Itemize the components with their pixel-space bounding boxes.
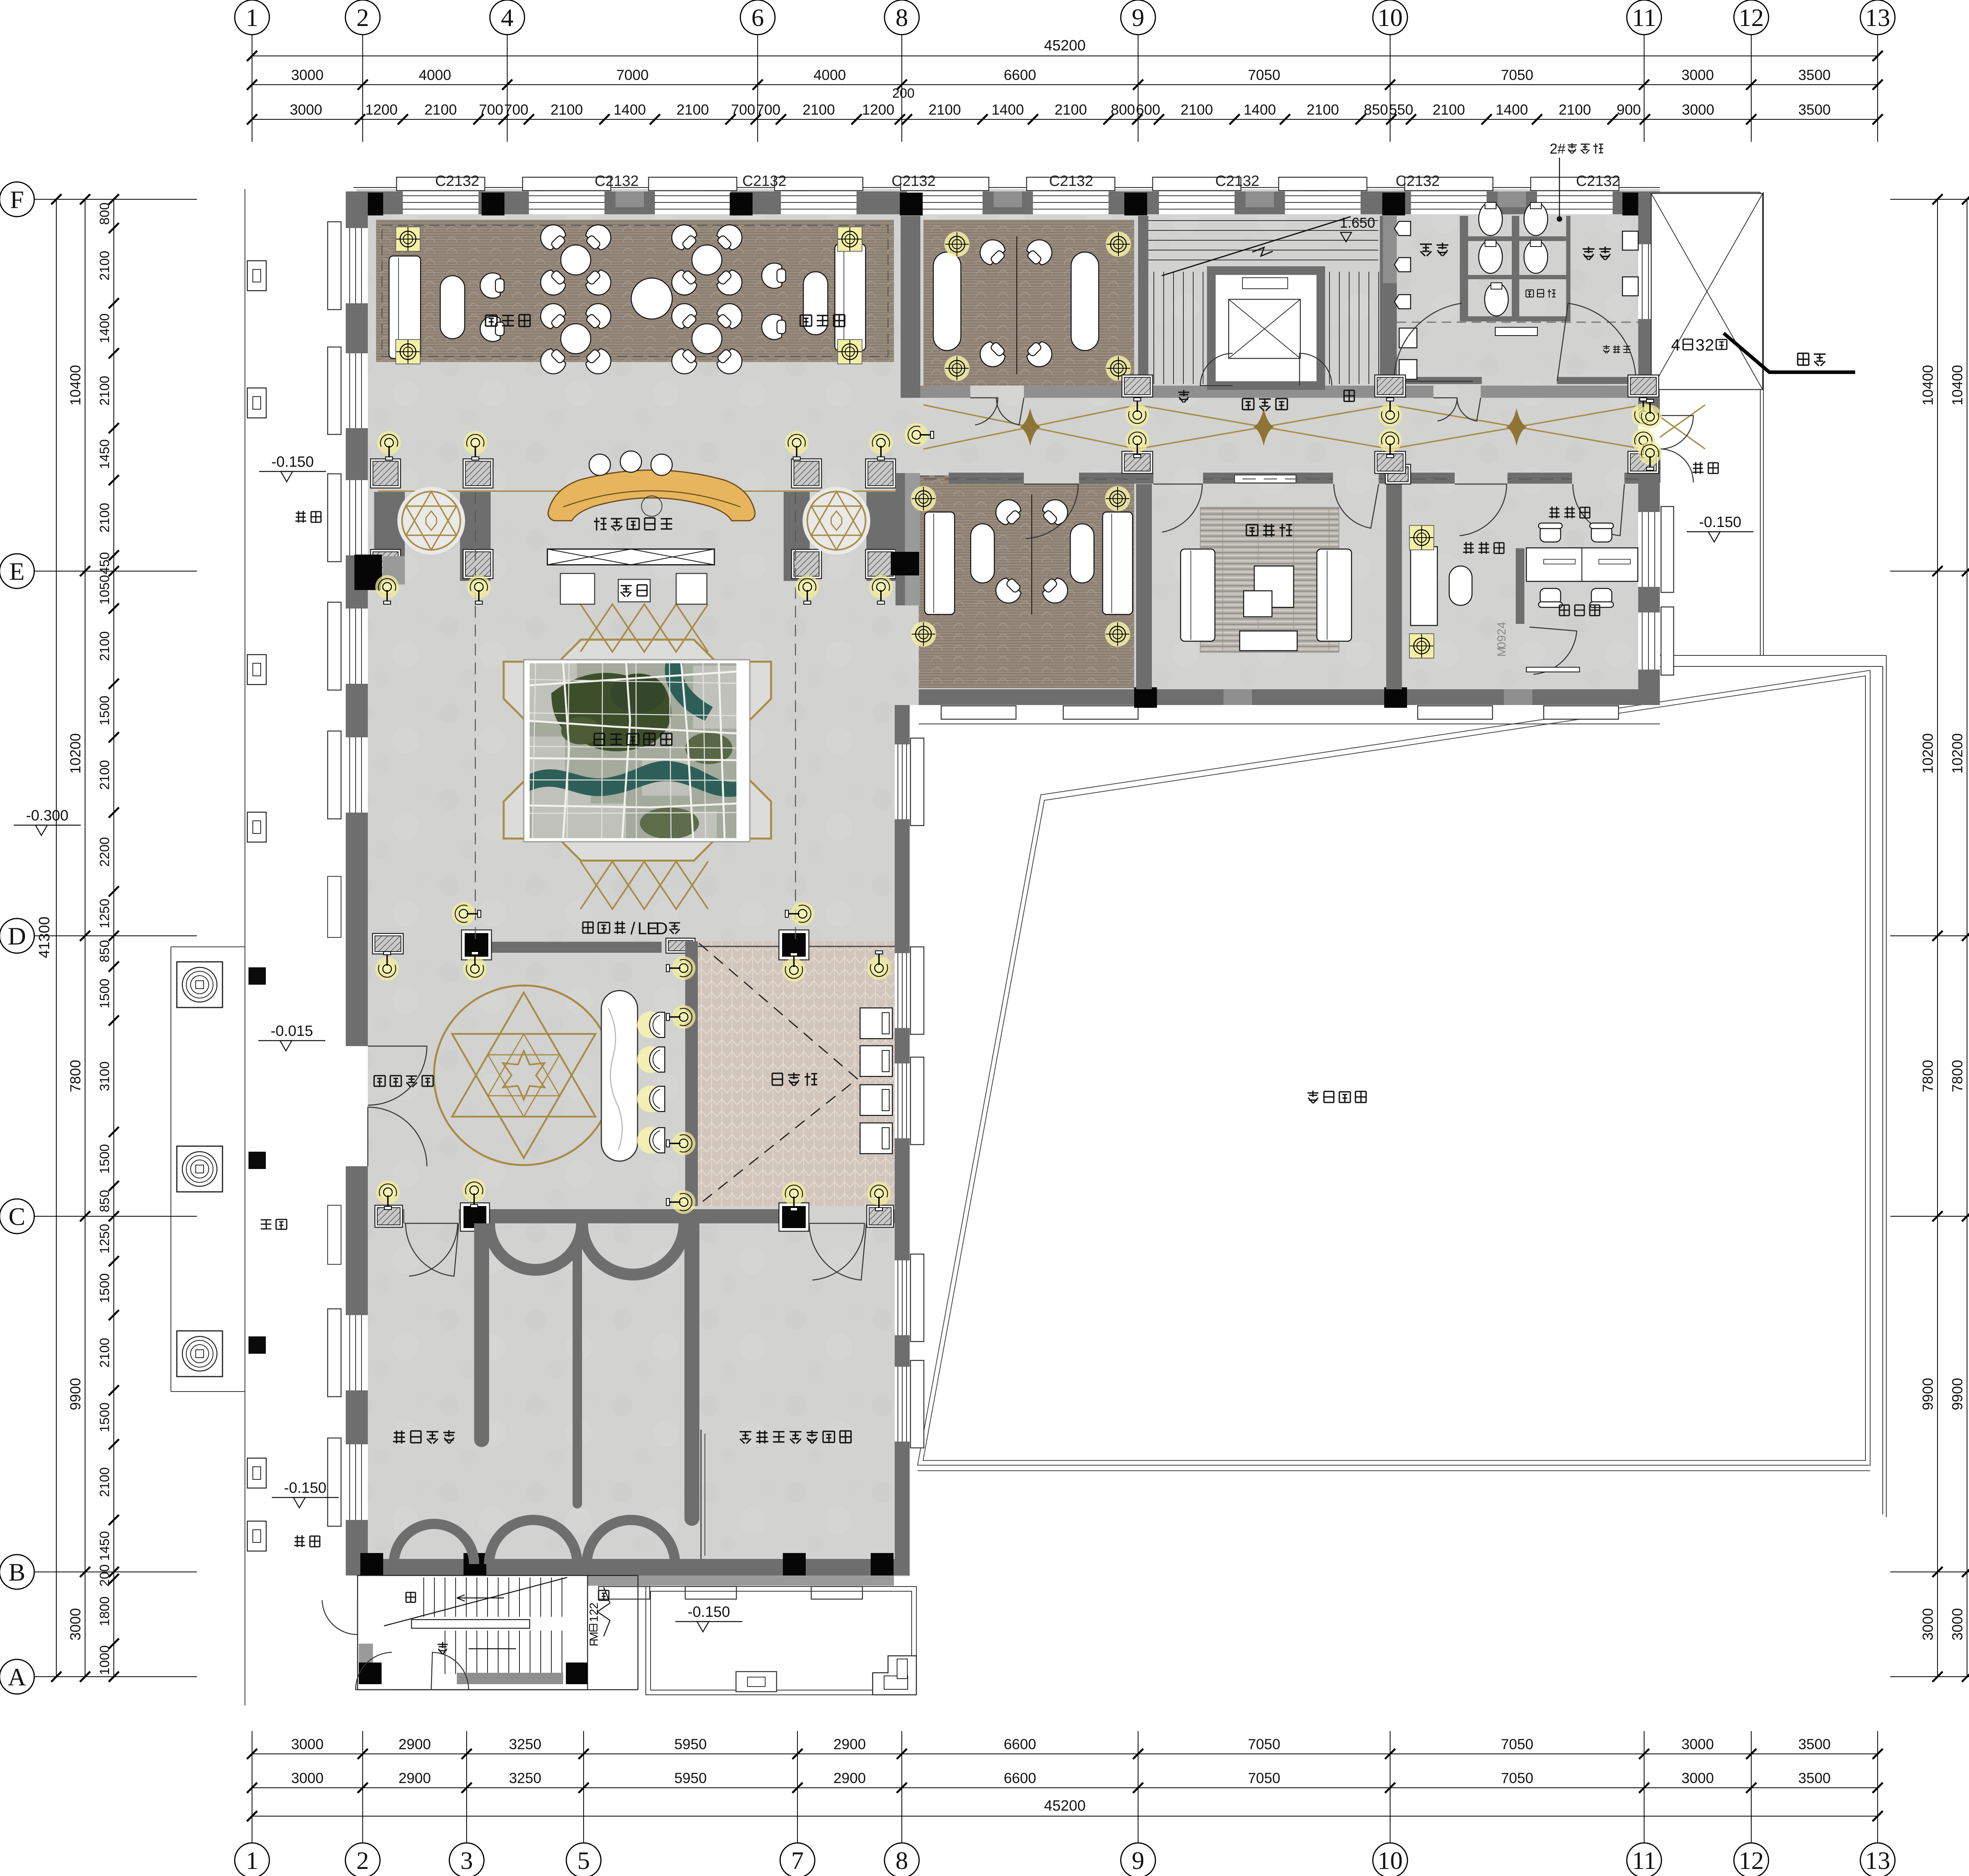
svg-text:2900: 2900 <box>399 1736 431 1752</box>
svg-text:7050: 7050 <box>1501 1770 1533 1786</box>
svg-text:2: 2 <box>1705 336 1714 354</box>
svg-text:3000: 3000 <box>291 1736 323 1752</box>
svg-text:3000: 3000 <box>290 102 322 118</box>
svg-text:450: 450 <box>97 552 112 575</box>
svg-text:2100: 2100 <box>1307 102 1339 118</box>
svg-text:2100: 2100 <box>425 102 457 118</box>
svg-text:3000: 3000 <box>1949 1608 1965 1640</box>
svg-text:41300: 41300 <box>36 917 53 958</box>
svg-text:4: 4 <box>1495 622 1508 629</box>
svg-text:1200: 1200 <box>862 102 894 118</box>
svg-text:2100: 2100 <box>1433 102 1465 118</box>
svg-text:C2132: C2132 <box>742 173 786 189</box>
svg-text:2100: 2100 <box>97 503 112 533</box>
svg-text:10200: 10200 <box>67 733 83 774</box>
svg-text:1000: 1000 <box>97 1645 112 1675</box>
svg-text:7800: 7800 <box>67 1060 83 1092</box>
svg-text:9900: 9900 <box>1920 1378 1936 1410</box>
svg-text:13: 13 <box>1865 4 1890 32</box>
svg-text:B: B <box>9 1558 26 1586</box>
svg-text:E: E <box>9 557 24 585</box>
svg-text:1500: 1500 <box>97 1273 112 1303</box>
svg-text:1250: 1250 <box>97 1224 112 1254</box>
svg-text:800: 800 <box>97 202 112 225</box>
svg-text:5950: 5950 <box>674 1736 706 1752</box>
svg-text:45200: 45200 <box>1044 37 1086 54</box>
svg-text:2900: 2900 <box>833 1770 866 1786</box>
svg-text:3000: 3000 <box>1682 1770 1714 1786</box>
svg-text:2100: 2100 <box>97 760 112 790</box>
svg-text:550: 550 <box>1389 102 1413 118</box>
svg-text:/: / <box>630 919 636 938</box>
svg-text:600: 600 <box>1136 102 1161 118</box>
svg-text:700: 700 <box>504 102 528 118</box>
svg-text:-0.300: -0.300 <box>26 807 69 824</box>
svg-text:1: 1 <box>246 1846 258 1874</box>
svg-text:2100: 2100 <box>97 1467 112 1497</box>
svg-text:2100: 2100 <box>677 102 709 118</box>
svg-text:2100: 2100 <box>551 102 583 118</box>
svg-text:2100: 2100 <box>1181 102 1213 118</box>
svg-text:850: 850 <box>97 940 112 963</box>
svg-text:1: 1 <box>588 1616 601 1622</box>
svg-text:2100: 2100 <box>1559 102 1591 118</box>
svg-text:1: 1 <box>246 4 258 32</box>
svg-text:2: 2 <box>1550 141 1557 157</box>
svg-text:2: 2 <box>356 1846 369 1874</box>
svg-text:1500: 1500 <box>97 1144 112 1174</box>
svg-text:D: D <box>8 922 26 950</box>
svg-text:1200: 1200 <box>365 102 397 118</box>
svg-text:3250: 3250 <box>509 1770 541 1786</box>
svg-text:2200: 2200 <box>97 837 112 867</box>
svg-text:7800: 7800 <box>1920 1060 1936 1092</box>
svg-text:D: D <box>655 919 668 938</box>
svg-text:2100: 2100 <box>97 631 112 661</box>
svg-text:C2132: C2132 <box>892 173 936 189</box>
svg-text:-0.150: -0.150 <box>1699 514 1741 531</box>
svg-text:9: 9 <box>1132 4 1144 32</box>
svg-text:F: F <box>10 186 24 213</box>
svg-text:6: 6 <box>751 4 764 32</box>
svg-text:-0.150: -0.150 <box>284 1480 326 1496</box>
svg-text:C2132: C2132 <box>1049 173 1093 189</box>
svg-text:3000: 3000 <box>1682 67 1714 83</box>
svg-text:2: 2 <box>356 4 369 32</box>
svg-text:3000: 3000 <box>1682 1736 1714 1752</box>
svg-text:5950: 5950 <box>674 1770 706 1786</box>
svg-text:1400: 1400 <box>992 102 1024 118</box>
svg-text:10400: 10400 <box>1949 365 1965 406</box>
svg-text:7000: 7000 <box>616 67 649 83</box>
svg-text:9: 9 <box>1132 1846 1144 1874</box>
svg-text:2100: 2100 <box>97 1338 112 1368</box>
svg-text:4000: 4000 <box>814 67 846 83</box>
svg-text:1450: 1450 <box>97 439 112 469</box>
svg-text:C2132: C2132 <box>1396 173 1440 189</box>
svg-text:2900: 2900 <box>833 1736 866 1752</box>
svg-text:-0.150: -0.150 <box>688 1604 730 1620</box>
svg-text:3100: 3100 <box>97 1061 112 1091</box>
svg-text:7050: 7050 <box>1248 1770 1280 1786</box>
svg-text:11: 11 <box>1632 4 1656 32</box>
svg-text:850: 850 <box>97 1190 112 1212</box>
svg-text:3000: 3000 <box>67 1608 83 1640</box>
svg-text:1400: 1400 <box>1244 102 1276 118</box>
svg-text:2100: 2100 <box>1055 102 1087 118</box>
svg-text:7800: 7800 <box>1949 1060 1965 1092</box>
svg-text:1500: 1500 <box>97 1403 112 1433</box>
svg-text:2: 2 <box>1495 629 1508 635</box>
svg-text:700: 700 <box>479 102 503 118</box>
svg-text:8: 8 <box>896 4 908 32</box>
svg-text:C2132: C2132 <box>1576 173 1620 189</box>
svg-text:2: 2 <box>588 1609 601 1616</box>
svg-text:6600: 6600 <box>1004 67 1036 83</box>
svg-text:700: 700 <box>756 102 781 118</box>
svg-text:3000: 3000 <box>1682 102 1714 118</box>
svg-text:1800: 1800 <box>97 1596 112 1626</box>
svg-text:13: 13 <box>1865 1846 1890 1874</box>
svg-text:2100: 2100 <box>803 102 835 118</box>
svg-text:10: 10 <box>1378 1846 1403 1874</box>
svg-text:2: 2 <box>588 1603 601 1609</box>
svg-text:9: 9 <box>1495 635 1508 642</box>
svg-text:-0.015: -0.015 <box>271 1023 313 1039</box>
svg-text:1250: 1250 <box>97 899 112 929</box>
svg-text:3: 3 <box>460 1846 473 1874</box>
svg-text:8: 8 <box>896 1846 908 1874</box>
svg-text:3000: 3000 <box>291 67 323 83</box>
svg-text:C2132: C2132 <box>1215 173 1259 189</box>
svg-text:L: L <box>638 919 647 938</box>
svg-text:C: C <box>9 1202 26 1230</box>
svg-text:800: 800 <box>1111 102 1135 118</box>
svg-text:900: 900 <box>1617 102 1641 118</box>
svg-text:2900: 2900 <box>399 1770 431 1786</box>
svg-text:2100: 2100 <box>929 102 961 118</box>
svg-text:1500: 1500 <box>97 979 112 1009</box>
svg-text:7050: 7050 <box>1501 67 1533 83</box>
svg-text:C2132: C2132 <box>595 173 639 189</box>
svg-text:700: 700 <box>731 102 755 118</box>
svg-text:1400: 1400 <box>97 314 112 343</box>
svg-text:850: 850 <box>1364 102 1388 118</box>
svg-text:10200: 10200 <box>1920 733 1936 774</box>
svg-text:4000: 4000 <box>419 67 451 83</box>
svg-text:3500: 3500 <box>1798 67 1830 83</box>
svg-text:200: 200 <box>97 1564 112 1587</box>
svg-text:5: 5 <box>577 1846 590 1874</box>
svg-text:#: # <box>1557 141 1565 157</box>
svg-text:2100: 2100 <box>97 376 112 406</box>
svg-text:3500: 3500 <box>1798 1770 1830 1786</box>
svg-text:10: 10 <box>1378 4 1403 32</box>
svg-text:M: M <box>588 1632 601 1642</box>
svg-text:3500: 3500 <box>1798 1736 1830 1752</box>
svg-text:6600: 6600 <box>1004 1770 1036 1786</box>
svg-text:3500: 3500 <box>1798 102 1830 118</box>
svg-text:7050: 7050 <box>1248 1736 1280 1752</box>
svg-text:1050: 1050 <box>97 575 112 605</box>
svg-text:7050: 7050 <box>1501 1736 1533 1752</box>
svg-text:4: 4 <box>501 4 514 32</box>
svg-text:10200: 10200 <box>1949 733 1965 774</box>
svg-text:7050: 7050 <box>1248 67 1280 83</box>
svg-text:4: 4 <box>1671 336 1680 354</box>
svg-text:2100: 2100 <box>97 251 112 281</box>
svg-text:1450: 1450 <box>97 1531 112 1561</box>
svg-text:6600: 6600 <box>1004 1736 1036 1752</box>
svg-text:-0.150: -0.150 <box>271 454 314 470</box>
svg-text:10400: 10400 <box>1920 365 1936 406</box>
svg-text:9900: 9900 <box>1949 1378 1965 1410</box>
svg-text:12: 12 <box>1739 1846 1764 1874</box>
svg-text:45200: 45200 <box>1044 1798 1086 1814</box>
svg-text:3: 3 <box>1695 336 1704 354</box>
svg-text:9900: 9900 <box>67 1378 83 1410</box>
svg-text:10400: 10400 <box>67 365 83 406</box>
svg-text:3250: 3250 <box>509 1736 541 1752</box>
svg-text:12: 12 <box>1739 4 1764 32</box>
svg-text:11: 11 <box>1632 1846 1656 1874</box>
svg-text:7: 7 <box>791 1846 804 1874</box>
svg-text:A: A <box>8 1663 26 1691</box>
svg-text:200: 200 <box>892 86 915 101</box>
svg-text:C2132: C2132 <box>435 173 479 189</box>
svg-text:1400: 1400 <box>614 102 646 118</box>
svg-text:1400: 1400 <box>1496 102 1528 118</box>
svg-text:0: 0 <box>1495 642 1508 649</box>
svg-text:3000: 3000 <box>1920 1608 1936 1640</box>
svg-text:3000: 3000 <box>291 1770 323 1786</box>
svg-text:1500: 1500 <box>97 696 112 726</box>
svg-text:1.650: 1.650 <box>1340 215 1375 231</box>
